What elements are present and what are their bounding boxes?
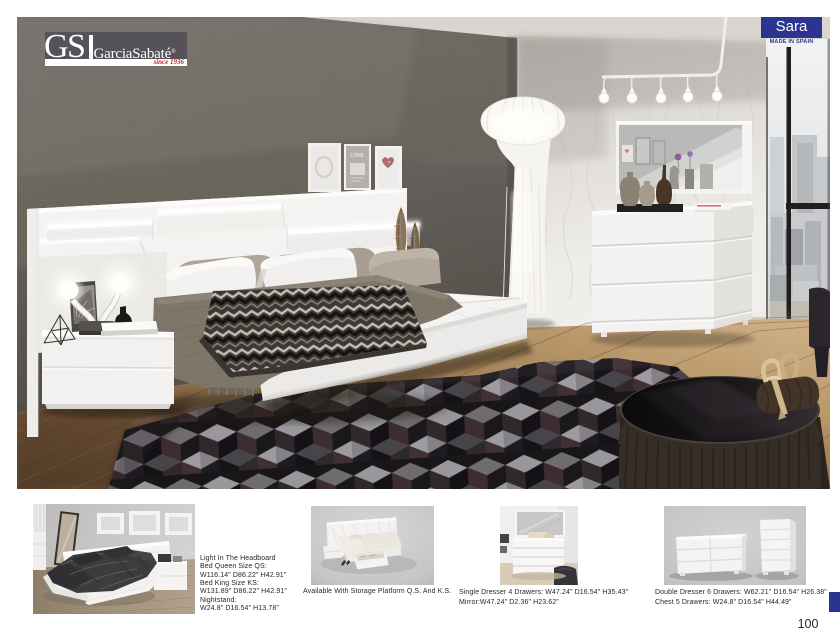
svg-text:LOVE: LOVE — [350, 153, 364, 159]
